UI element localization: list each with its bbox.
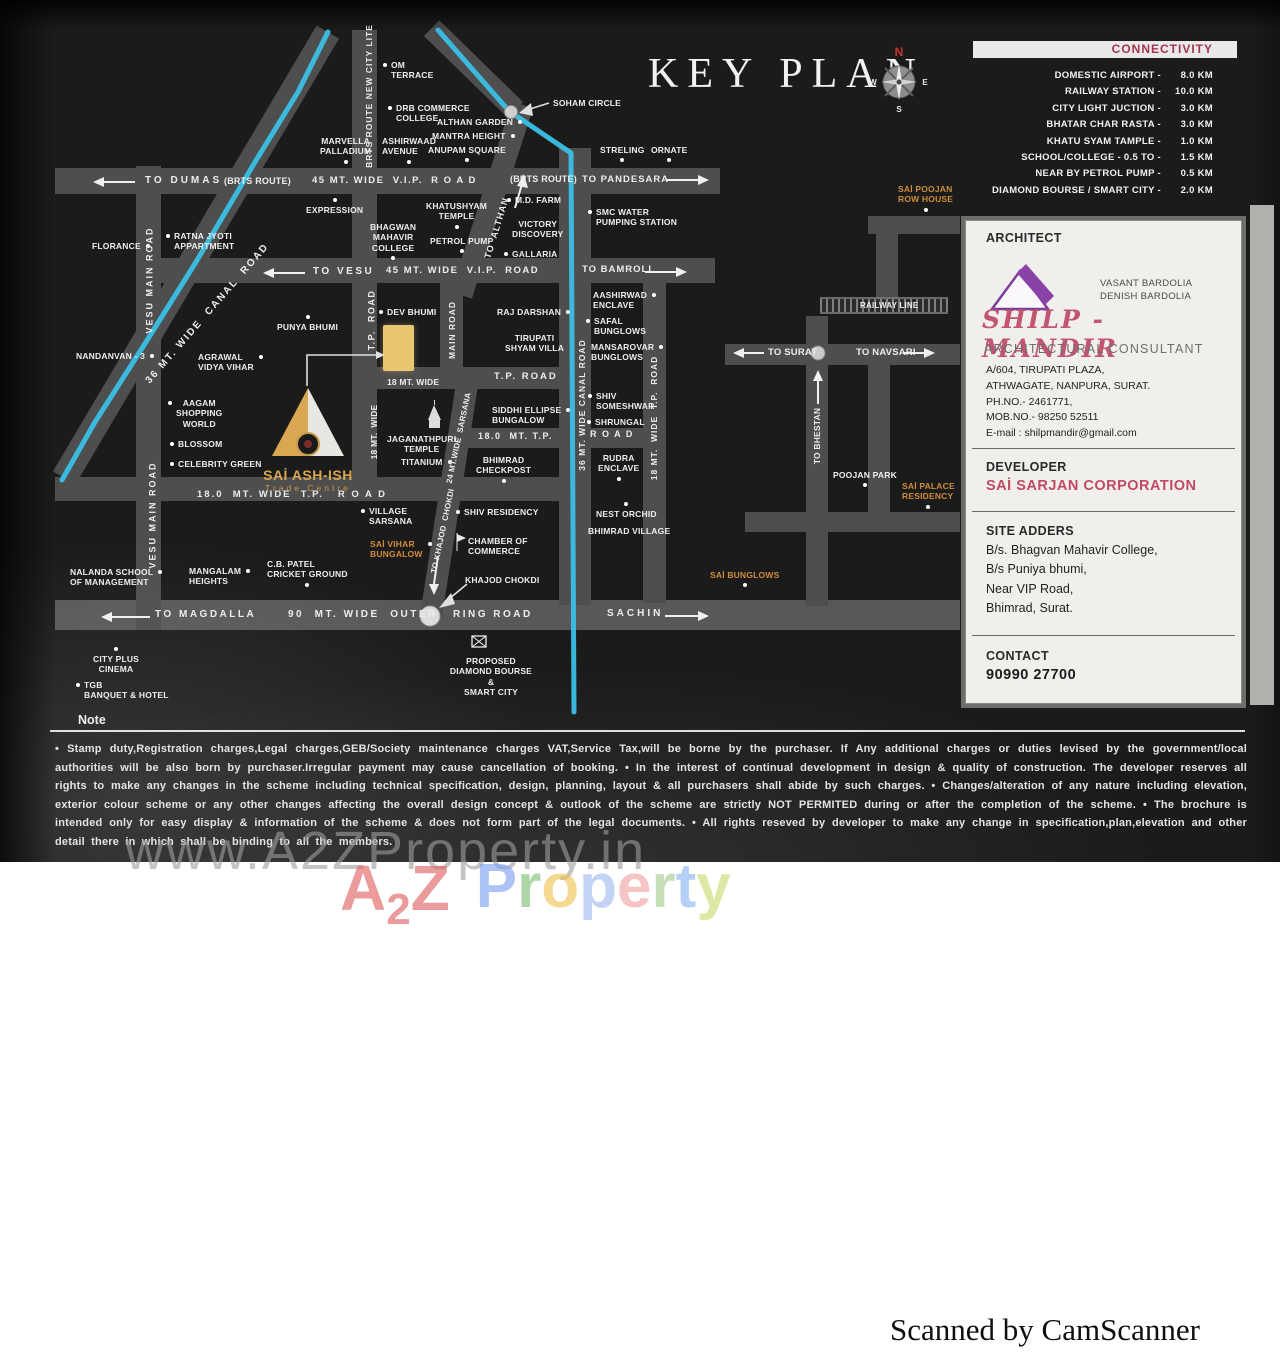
map-label: M.D. FARM	[515, 195, 561, 205]
map-label: SAİ BUNGLOWS	[710, 570, 779, 580]
watermark-letter: t	[676, 856, 697, 918]
diamond-bourse-icon	[472, 636, 486, 647]
map-label: TO VESU	[313, 266, 374, 278]
card-divider	[972, 511, 1235, 512]
property-mark: Property	[476, 856, 731, 918]
map-label: (BRTS ROUTE)	[510, 174, 577, 185]
watermark-letter: A	[340, 856, 386, 920]
note-divider	[50, 730, 1245, 732]
connectivity-item: SCHOOL/COLLEGE - 0.5 TO -1.5 KM	[960, 152, 1213, 168]
site-address-heading: SITE ADDERS	[986, 524, 1074, 538]
road	[725, 344, 960, 365]
site-logo-icon	[266, 386, 350, 460]
contact-heading: CONTACT	[986, 649, 1049, 663]
map-label: 18.0 MT. T.P.	[478, 431, 553, 442]
svg-text:N: N	[895, 45, 904, 59]
map-label: TO BAMROLI	[582, 264, 652, 276]
map-label: BHAGWAN MAHAVIR COLLEGE	[370, 222, 416, 253]
watermark-letter: p	[579, 856, 617, 918]
map-label: 36 MT. WIDE CANAL ROAD	[577, 339, 587, 470]
map-label: SIDDHI ELLIPSE BUNGALOW	[492, 405, 561, 426]
watermark-letter: P	[476, 856, 517, 918]
developer-heading: DEVELOPER	[986, 460, 1067, 474]
connectivity-header-label: CONNECTIVITY	[1112, 42, 1213, 56]
connectivity-item: BHATAR CHAR RASTA -3.0 KM	[960, 119, 1213, 135]
map-label: POOJAN PARK	[833, 470, 897, 480]
map-label: SAİ POOJAN ROW HOUSE	[898, 184, 953, 205]
map-label: DEV BHUMI	[387, 307, 437, 317]
connectivity-item: NEAR BY PETROL PUMP -0.5 KM	[960, 168, 1213, 184]
scanner-credit: Scanned by CamScanner	[890, 1312, 1200, 1348]
map-label: MAIN ROAD	[447, 301, 457, 359]
card-divider	[972, 448, 1235, 449]
road	[868, 352, 890, 524]
map-label: TO NAVSARI	[856, 347, 916, 359]
connectivity-list: DOMESTIC AIRPORT -8.0 KMRAILWAY STATION …	[960, 70, 1213, 201]
svg-text:E: E	[922, 78, 928, 87]
site-logo-name: SAİ ASH-ISH	[258, 467, 358, 483]
map-label: BHIMRAD VILLAGE	[588, 526, 670, 536]
map-label: VESU MAIN ROAD	[148, 461, 159, 568]
map-label: MANTRA HEIGHT	[432, 131, 506, 141]
map-label: CITY PLUS CINEMA	[93, 654, 139, 675]
map-label: NEST ORCHID	[596, 509, 657, 519]
compass-icon: N W E S	[868, 44, 930, 114]
map-label: AGRAWAL VIDYA VIHAR	[198, 352, 254, 373]
architect-names: VASANT BARDOLIADENISH BARDOLIA	[1100, 277, 1192, 304]
map-label: 18 MT. WIDE	[387, 377, 439, 387]
map-label: NANDANVAN - 3	[76, 351, 145, 361]
road	[745, 512, 960, 532]
watermark-letter: Z	[411, 856, 450, 920]
brochure-page: SAİ ASH-ISH Trade Centre OM TERRACEDRB C…	[0, 0, 1280, 1360]
connectivity-item: CITY LIGHT JUCTION -3.0 KM	[960, 103, 1213, 119]
map-label: 18 MT. WIDE	[369, 405, 379, 460]
map-label: AAGAM SHOPPING WORLD	[176, 398, 222, 429]
map-label: C.B. PATEL CRICKET GROUND	[267, 559, 348, 580]
scan-edge	[1250, 205, 1274, 705]
connectivity-header: CONNECTIVITY	[973, 41, 1237, 58]
map-label: KHAJOD CHOKDI	[465, 575, 539, 585]
map-label: ASHIRWAAD AVENUE	[382, 136, 436, 157]
map-label: TO SURAT	[768, 347, 817, 359]
key-plan-panel: SAİ ASH-ISH Trade Centre OM TERRACEDRB C…	[0, 0, 1280, 862]
map-label: ORNATE	[651, 145, 687, 155]
map-label: CELEBRITY GREEN	[178, 459, 262, 469]
watermark-letter: e	[617, 856, 651, 918]
map-label: OM TERRACE	[391, 60, 434, 81]
map-label: SAİ PALACE RESIDENCY	[902, 481, 955, 502]
map-label: VESU MAIN ROAD	[145, 226, 156, 333]
connectivity-item: DOMESTIC AIRPORT -8.0 KM	[960, 70, 1213, 86]
map-label: SOHAM CIRCLE	[553, 98, 621, 108]
watermark-letter: o	[541, 856, 579, 918]
connectivity-item: DIAMOND BOURSE / SMART CITY -2.0 KM	[960, 185, 1213, 201]
map-label: SHIV SOMESHWAR	[596, 391, 654, 412]
connectivity-item: KHATU SYAM TAMPLE -1.0 KM	[960, 136, 1213, 152]
map-label: PROPOSED DIAMOND BOURSE & SMART CITY	[443, 656, 539, 697]
svg-text:W: W	[869, 78, 877, 87]
map-label: 18.0 MT. WIDE T.P. R O A D	[197, 489, 387, 501]
map-label: SHRUNGAL	[595, 417, 645, 427]
map-label: MANGALAM HEIGHTS	[189, 566, 241, 587]
map-label: 45 MT. WIDE V.I.P. ROAD	[386, 265, 539, 277]
map-label: SAİ VIHAR BUNGALOW	[370, 539, 423, 560]
architect-subtitle: ARCHITECTURAL CONSULTANT	[984, 342, 1204, 356]
connectivity-item: RAILWAY STATION -10.0 KM	[960, 86, 1213, 102]
map-label: TO MAGDALLA	[155, 609, 256, 621]
architect-heading: ARCHITECT	[986, 231, 1062, 245]
map-label: SHIV RESIDENCY	[464, 507, 539, 517]
card-divider	[972, 635, 1235, 636]
map-label: BHIMRAD CHECKPOST	[476, 455, 531, 476]
developer-name: SAİ SARJAN CORPORATION	[986, 478, 1197, 494]
map-label: R O A D	[590, 429, 634, 440]
map-label: ALTHAN GARDEN	[437, 117, 513, 127]
map-label: SAFAL BUNGLOWS	[594, 316, 646, 337]
map-label: PETROL PUMP	[430, 236, 493, 246]
map-label: 90 MT. WIDE OUTER	[288, 609, 438, 621]
map-label: RUDRA ENCLAVE	[598, 453, 639, 474]
map-label: ANUPAM SQUARE	[428, 145, 506, 155]
map-label: TO BHESTAN	[812, 408, 822, 464]
map-label: KHATUSHYAM TEMPLE	[426, 201, 487, 222]
site-logo: SAİ ASH-ISH Trade Centre	[258, 386, 358, 493]
watermark-letter: r	[652, 856, 676, 918]
map-label: RAILWAY LINE	[860, 301, 918, 311]
map-label: PUNYA BHUMI	[277, 322, 338, 332]
map-label: (BRTS ROUTE)	[224, 176, 291, 187]
note-title: Note	[78, 713, 106, 727]
map-label: TO PANDESARA	[582, 174, 669, 186]
a2z-mark: A2Z	[340, 856, 450, 920]
map-label: RAJ DARSHAN	[497, 307, 561, 317]
map-label: NALANDA SCHOOL OF MANAGEMENT	[70, 567, 153, 588]
map-label: BRTS ROUTE NEW CITY LITE	[364, 24, 374, 168]
info-card: ARCHITECT VASANT BARDOLIADENISH BARDOLIA…	[965, 220, 1242, 704]
a2z-watermark: A2Z Property	[340, 856, 731, 920]
map-label: AASHIRWAD ENCLAVE	[593, 290, 647, 311]
watermark-letter: y	[696, 856, 730, 918]
map-label: RING ROAD	[453, 609, 533, 621]
flag-icon	[457, 533, 466, 551]
map-label: T.P. ROAD	[367, 290, 378, 351]
map-label: JAGANATHPURI TEMPLE	[387, 434, 456, 455]
map-label: SACHIN	[607, 608, 663, 620]
map-label: BLOSSOM	[178, 439, 222, 449]
watermark-letter: 2	[386, 888, 410, 932]
map-label: TIRUPATI SHYAM VILLA	[505, 333, 564, 354]
temple-icon	[428, 400, 441, 428]
map-label: FLORANCE	[92, 241, 141, 251]
map-label: CHAMBER OF COMMERCE	[468, 536, 528, 557]
map-label: 45 MT. WIDE V.I.P. R O A D	[312, 175, 477, 187]
map-label: MANSAROVAR BUNGLOWS	[591, 342, 654, 363]
map-label: SMC WATER PUMPING STATION	[596, 207, 677, 228]
map-label: STRELING	[600, 145, 645, 155]
site-plot	[383, 325, 414, 371]
map-label: VILLAGE SARSANA	[369, 506, 412, 527]
contact-phone: 90990 27700	[986, 667, 1076, 683]
road	[876, 216, 898, 302]
map-label: EXPRESSION	[306, 205, 363, 215]
map-label: TGB BANQUET & HOTEL	[84, 680, 169, 701]
map-label: TITANIUM	[401, 457, 443, 467]
map-label: VICTORY DISCOVERY	[512, 219, 564, 240]
map-label: GALLARIA	[512, 249, 558, 259]
svg-text:S: S	[896, 105, 902, 114]
architect-address: A/604, TIRUPATI PLAZA,ATHWAGATE, NANPURA…	[986, 363, 1150, 442]
map-label: 18 MT. WIDE T.P. ROAD	[649, 356, 659, 480]
site-address-lines: B/s. Bhagvan Mahavir College,B/s Puniya …	[986, 541, 1158, 619]
map-label: T.P. ROAD	[494, 371, 558, 383]
map-label: RATNA JYOTI APPARTMENT	[174, 231, 234, 252]
watermark-letter: r	[517, 856, 541, 918]
map-label: TO DUMAS	[145, 175, 222, 187]
